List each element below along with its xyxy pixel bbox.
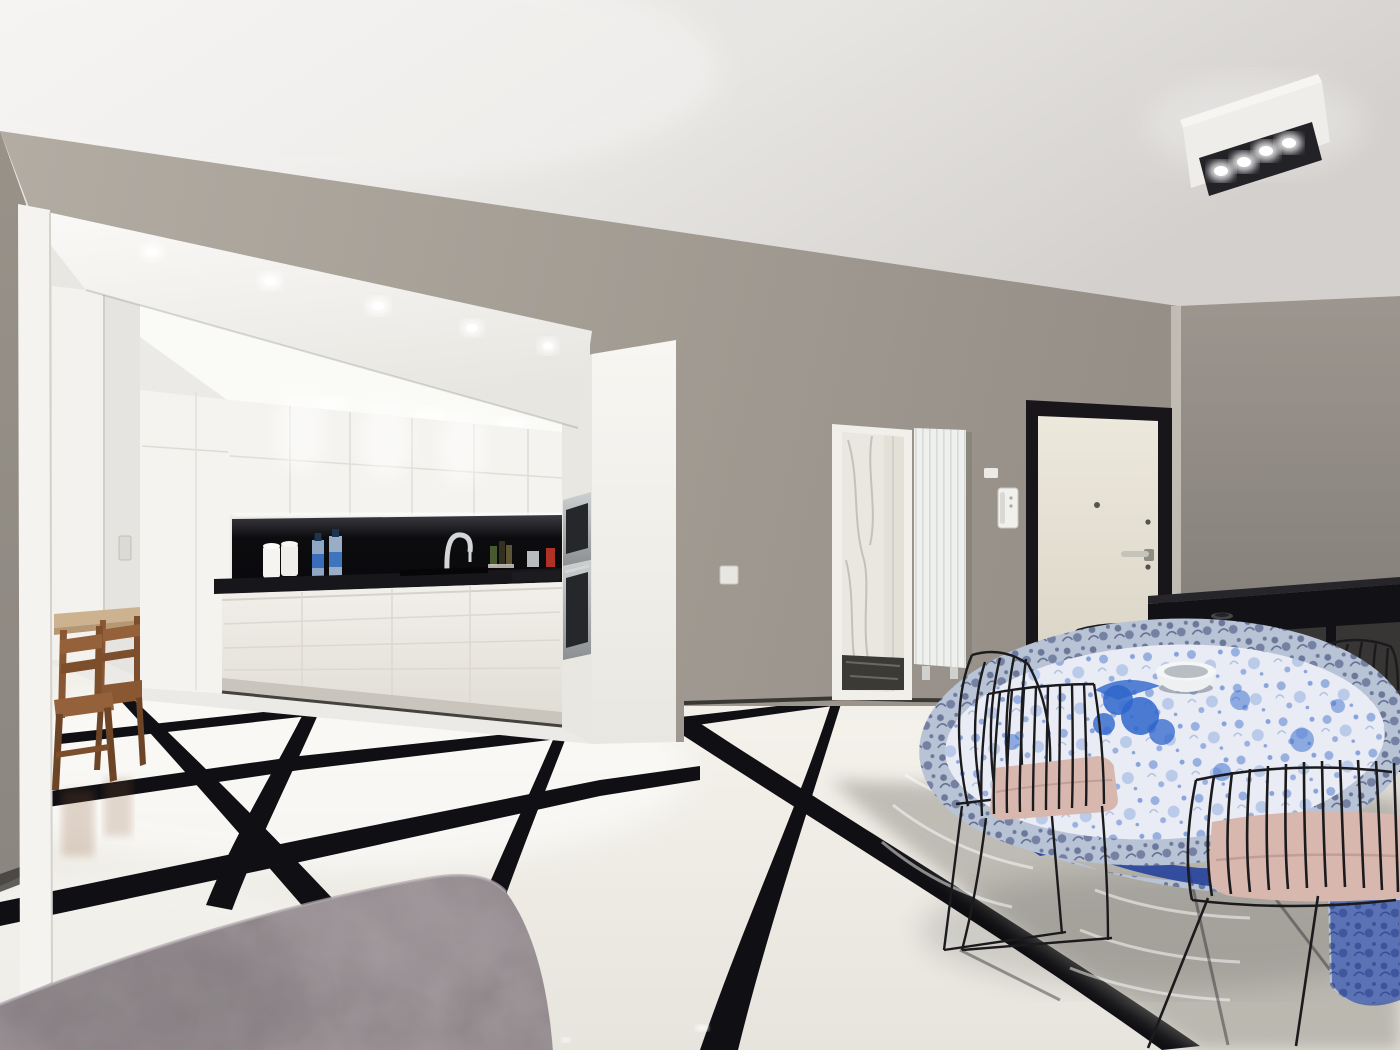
upper-lock: [1145, 519, 1150, 524]
wooden-chair-reflection-2: [104, 778, 132, 836]
apartment-photo-svg: [0, 0, 1400, 1050]
bathroom-dark-floor: [842, 655, 904, 690]
intercom-speaker-dot2: [1009, 504, 1012, 507]
vertical-radiator: [914, 428, 972, 680]
white-bowl: [1156, 662, 1216, 695]
bathroom-doorway: [832, 424, 912, 700]
red-bottle: [546, 548, 555, 567]
kettle: [527, 551, 539, 567]
light-switch: [720, 566, 738, 584]
peephole: [1094, 502, 1100, 508]
marble-wall: [842, 432, 884, 692]
gas-hob: [512, 570, 560, 582]
apartment-photo: [0, 0, 1400, 1050]
tall-cabinet-left: [140, 390, 230, 694]
bathroom-door-leaf: [884, 435, 904, 692]
wall-corner-highlight: [1171, 306, 1181, 600]
radiator-shadow: [966, 432, 972, 664]
microwave-window: [566, 503, 588, 554]
radiator-foot: [922, 666, 930, 680]
keyhole: [1145, 564, 1150, 569]
alcove-left-jamb: [18, 204, 52, 1002]
wooden-chair-reflection: [62, 790, 94, 856]
intercom-speaker-dot: [1009, 496, 1012, 499]
sideboard-dish-inner: [1215, 613, 1229, 617]
radiator-foot-2: [950, 667, 958, 679]
door-handle: [1121, 551, 1149, 557]
small-wall-plate: [984, 468, 998, 478]
intercom-handset: [1000, 492, 1005, 524]
corridor-back-wall: [52, 286, 104, 662]
corridor-light-switch: [119, 536, 131, 560]
column-front-face: [592, 340, 676, 744]
radiator-body: [914, 428, 966, 668]
tablecloth-navy-right: [1330, 900, 1400, 1006]
oven-glass: [566, 572, 588, 648]
